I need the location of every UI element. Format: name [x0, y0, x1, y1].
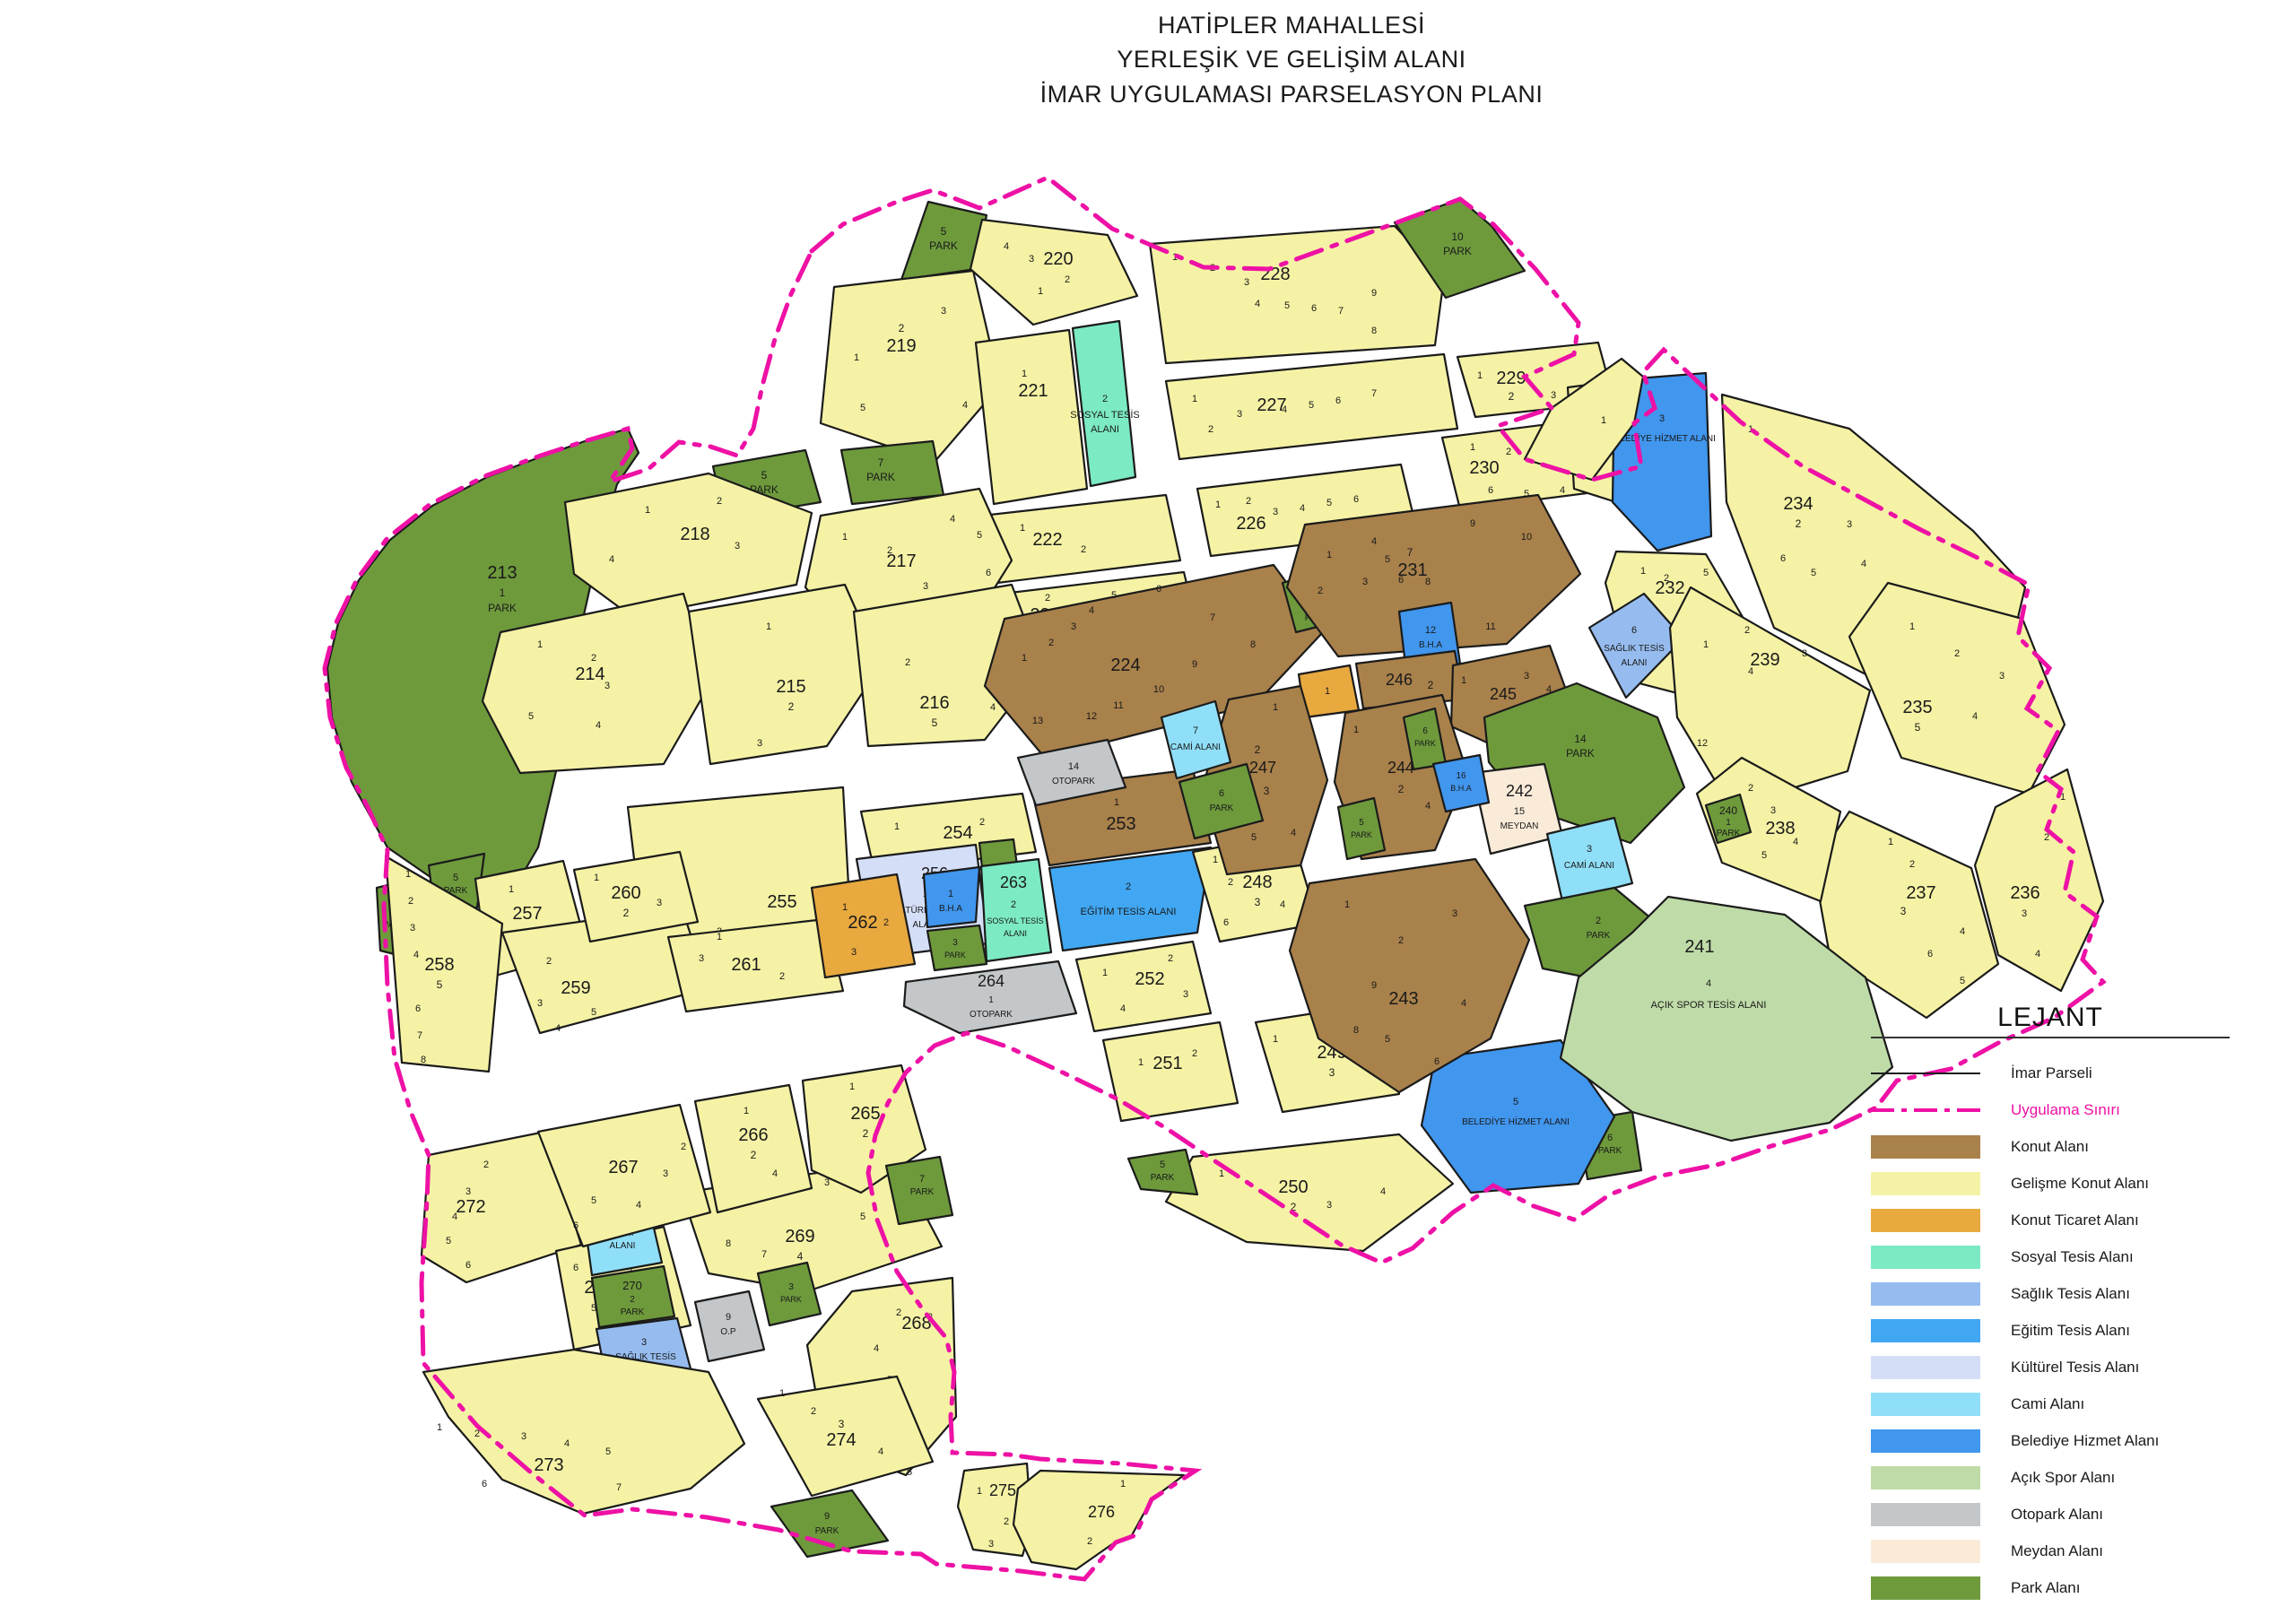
legend-color-swatch: [1871, 1319, 1980, 1342]
block-243-label: 8: [1353, 1025, 1359, 1036]
block-273-label: 273: [534, 1455, 563, 1475]
block-226-label: 5: [1326, 498, 1332, 508]
park-10-label: PARK: [1443, 245, 1472, 257]
saglik-232-label: ALANI: [1622, 658, 1648, 668]
block-220-label: 2: [1065, 274, 1070, 285]
block-218-label: 3: [735, 541, 740, 551]
park-6a-label: 6: [1219, 788, 1224, 799]
block-230-label: 1: [1470, 442, 1475, 453]
legend-line-label: İmar Parseli: [2011, 1064, 2092, 1082]
block-250-label: 1: [1219, 1168, 1224, 1179]
belediye-5-label: BELEDİYE HİZMET ALANI: [1462, 1116, 1570, 1127]
block-276-label: 2: [1087, 1536, 1092, 1547]
block-227-label: 3: [1237, 409, 1242, 420]
block-243-label: 5: [1385, 1034, 1390, 1045]
block-250-shape: [1166, 1134, 1453, 1251]
legend-color-swatch: [1871, 1282, 1980, 1306]
block-221-label: 221: [1018, 381, 1048, 401]
block-268-label: 4: [874, 1343, 879, 1354]
legend-line-label: Uygulama Sınırı: [2011, 1101, 2120, 1119]
park-7b-label: 7: [919, 1174, 925, 1185]
legend-area-item-11: Meydan Alanı: [1871, 1533, 2230, 1569]
park-14-label: PARK: [1566, 747, 1595, 760]
block-229-label: 2: [1509, 390, 1515, 403]
block-269-label: 5: [860, 1211, 865, 1222]
otopark-264-label: 1: [988, 995, 994, 1005]
map-title-line3: İMAR UYGULAMASI PARSELASYON PLANI: [951, 80, 1632, 109]
block-224-label: 4: [1089, 605, 1094, 616]
block-258-label: 3: [410, 923, 415, 934]
bha-242-label: 16: [1456, 771, 1466, 781]
egitim-253-label: 2: [1126, 881, 1131, 892]
legend-area-label: Konut Alanı: [2011, 1138, 2089, 1156]
block-224-label: 13: [1032, 716, 1043, 726]
block-273-label: 1: [437, 1422, 442, 1433]
block-245-label: 3: [1524, 671, 1529, 682]
konut-246-label: 2: [1428, 679, 1434, 691]
block-251: 25112: [1103, 1022, 1238, 1121]
block-259-label: 5: [591, 1007, 596, 1018]
block-228-label: 7: [1338, 306, 1344, 317]
block-224-label: 11: [1113, 700, 1123, 711]
block-237-label: 6: [1927, 949, 1933, 960]
block-247-label: 4: [1291, 828, 1296, 838]
legend-title: LEJANT: [1871, 1003, 2230, 1033]
saglik-232-label: SAĞLIK TESİS: [1604, 642, 1665, 654]
block-229-label: 1: [1477, 370, 1483, 381]
block-269-label: 269: [785, 1227, 814, 1246]
legend-color-swatch: [1871, 1429, 1980, 1453]
block-227-label: 2: [1208, 424, 1213, 435]
block-272-label: 3: [465, 1186, 471, 1197]
park-14-label: 14: [1574, 733, 1587, 745]
block-222-label: 1: [1020, 523, 1025, 534]
block-228: 228123456789: [1150, 226, 1444, 363]
block-267-label: 5: [591, 1195, 596, 1206]
block-227-label: 6: [1335, 395, 1341, 406]
otopark-224-label: 14: [1068, 761, 1079, 772]
block-234-label: 2: [1796, 517, 1802, 530]
block-234-label: 5: [1811, 568, 1816, 578]
legend-area-label: Belediye Hizmet Alanı: [2011, 1432, 2159, 1450]
block-260-label: 3: [657, 898, 662, 908]
block-214-label: 1: [537, 639, 543, 650]
block-231-label: 9: [1470, 518, 1475, 529]
block-274-label: 1: [779, 1388, 785, 1399]
block-250: 2502134: [1166, 1134, 1453, 1251]
park-3a-label: PARK: [780, 1295, 802, 1304]
block-222-label: 2: [1081, 544, 1086, 555]
park-5c-label: 5: [1160, 1159, 1165, 1170]
park-7a-label: 7: [878, 456, 884, 469]
block-251-label: 1: [1138, 1057, 1144, 1068]
block-249-label: 1: [1273, 1034, 1278, 1045]
block-220: 2201234: [970, 220, 1137, 325]
block-239-label: 2: [1744, 625, 1750, 636]
bha-263-label: B.H.A: [939, 904, 962, 914]
block-269-label: 7: [761, 1249, 767, 1260]
bha-231-label: 12: [1425, 625, 1436, 636]
block-226-label: 1: [1215, 499, 1221, 510]
block-252-label: 3: [1183, 989, 1188, 1000]
otopark-269: 9O.P: [695, 1291, 764, 1361]
park-5c-shape: [1128, 1150, 1197, 1194]
block-226-label: 2: [1246, 496, 1251, 507]
block-268-label: 2: [896, 1307, 901, 1318]
block-219: 21921345: [821, 271, 1000, 462]
sosyal-263-label: SOSYAL TESİS: [987, 916, 1043, 925]
block-266-label: 1: [744, 1106, 749, 1116]
park-7b-label: PARK: [910, 1187, 935, 1197]
block-275-label: 1: [977, 1486, 982, 1497]
block-258-label: 1: [405, 869, 411, 880]
block-243-label: 3: [1452, 908, 1457, 919]
block-258-label: 8: [421, 1055, 426, 1065]
block-254-label: 2: [979, 817, 985, 828]
block-266-label: 2: [751, 1149, 757, 1161]
sosyal-263-label: ALANI: [1004, 929, 1027, 938]
block-215-label: 1: [766, 621, 771, 632]
block-224-label: 8: [1250, 639, 1256, 650]
block-237-label: 1: [1888, 837, 1893, 847]
block-273-shape: [423, 1350, 744, 1514]
parcel-line-swatch: [1871, 1073, 1980, 1074]
block-220-label: 3: [1029, 254, 1034, 265]
park-213-label: 213: [487, 563, 517, 583]
legend-area-item-3: Sosyal Tesis Alanı: [1871, 1238, 2230, 1275]
block-227-label: 4: [1282, 404, 1287, 415]
block-227-label: 5: [1309, 400, 1314, 411]
park-270: 2702PARK: [592, 1266, 674, 1327]
block-237-label: 2: [1909, 859, 1915, 870]
park-213-label: PARK: [488, 602, 517, 614]
block-266-label: 4: [772, 1168, 778, 1179]
block-239-label: 239: [1750, 650, 1779, 670]
block-265-label: 2: [863, 1127, 869, 1140]
legend-color-swatch: [1871, 1503, 1980, 1526]
park-213-label: 1: [500, 586, 506, 599]
block-239-label: 1: [1703, 639, 1709, 650]
block-274-label: 3: [839, 1418, 845, 1430]
block-248-label: 4: [1280, 899, 1285, 910]
block-217-label: 3: [923, 581, 928, 592]
legend-area-item-4: Sağlık Tesis Alanı: [1871, 1275, 2230, 1312]
cami-241-label: 3: [1587, 844, 1592, 855]
sosyal-221-label: 2: [1102, 394, 1108, 404]
park-263: 3PARK: [927, 925, 987, 970]
block-245-label: 1: [1461, 675, 1466, 686]
block-252: 2521234: [1076, 942, 1211, 1031]
block-234-label: 6: [1780, 553, 1786, 564]
block-222: 22212: [982, 495, 1180, 583]
block-226-label: 6: [1353, 494, 1359, 505]
block-227-label: 1: [1192, 394, 1197, 404]
block-227-label: 7: [1371, 388, 1377, 399]
legend-area-item-12: Park Alanı: [1871, 1569, 2230, 1606]
block-262: 262123: [812, 874, 915, 977]
block-261-label: 3: [699, 953, 704, 964]
block-236-label: 236: [2010, 883, 2039, 903]
legend-area-label: Kültürel Tesis Alanı: [2011, 1359, 2139, 1376]
block-247-label: 1: [1273, 702, 1278, 713]
block-259-label: 2: [546, 956, 552, 967]
block-217-label: 1: [842, 532, 848, 543]
block-254-label: 254: [943, 823, 972, 843]
block-235-shape: [1849, 583, 2065, 794]
otopark-269-shape: [695, 1291, 764, 1361]
block-224-label: 10: [1153, 684, 1164, 695]
block-235-label: 235: [1902, 698, 1932, 717]
block-227: 2271234567: [1166, 354, 1457, 459]
otopark-264-label: OTOPARK: [970, 1010, 1013, 1020]
map-title: HATİPLER MAHALLESİ YERLEŞİK VE GELİŞİM A…: [951, 11, 1632, 114]
block-273-label: 7: [616, 1482, 622, 1493]
block-231-label: 6: [1398, 575, 1404, 586]
block-214-label: 2: [591, 653, 596, 664]
block-239-label: 3: [1802, 648, 1807, 659]
block-271-label: 6: [573, 1263, 578, 1273]
block-272-label: 272: [456, 1197, 485, 1217]
block-273: 2731234567: [423, 1350, 744, 1514]
park-6a-label: PARK: [1210, 803, 1234, 813]
block-252-label: 4: [1120, 1003, 1126, 1014]
block-216-label: 4: [990, 702, 996, 713]
block-238-label: 3: [1770, 805, 1776, 816]
block-238-label: 5: [1761, 850, 1767, 861]
block-274-label: 4: [878, 1446, 883, 1457]
block-231-label: 4: [1371, 536, 1377, 547]
block-231-label: 8: [1425, 577, 1431, 587]
block-231-label: 7: [1407, 546, 1413, 559]
bha-263-label: 1: [948, 889, 953, 899]
legend-area-label: Otopark Alanı: [2011, 1506, 2103, 1524]
block-219-label: 5: [860, 403, 865, 413]
park-9b-label: PARK: [815, 1526, 839, 1536]
block-220-shape: [970, 220, 1137, 325]
block-265-label: 1: [849, 1081, 855, 1092]
block-219-label: 3: [941, 306, 946, 317]
block-244-label: 1: [1353, 725, 1359, 735]
block-235-label: 4: [1972, 711, 1978, 722]
legend-color-swatch: [1871, 1172, 1980, 1195]
block-231-label: 5: [1385, 554, 1390, 565]
park-7b: 7PARK: [886, 1157, 952, 1224]
block-243-label: 6: [1434, 1056, 1439, 1067]
block-222-shape: [982, 495, 1180, 583]
block-267-label: 2: [681, 1142, 686, 1152]
block-249-label: 3: [1329, 1066, 1335, 1079]
sosyal-263: 2632SOSYAL TESİSALANI: [981, 859, 1051, 961]
block-248-label: 248: [1242, 873, 1272, 892]
park-5-top-label: PARK: [929, 239, 958, 252]
block-218-label: 4: [609, 554, 614, 565]
block-274-label: 274: [826, 1430, 856, 1450]
legend-color-swatch: [1871, 1540, 1980, 1563]
legend-area-item-9: Açık Spor Alanı: [1871, 1459, 2230, 1496]
otopark-269-label: O.P: [720, 1327, 736, 1337]
cami-241-label: CAMİ ALANI: [1564, 859, 1614, 871]
block-230-label: 6: [1488, 485, 1493, 496]
block-224-label: 12: [1086, 711, 1097, 722]
acikspor-241-label: AÇIK SPOR TESİS ALANI: [1651, 999, 1767, 1011]
block-244-label: 4: [1425, 801, 1431, 812]
block-259-label: 3: [537, 998, 543, 1009]
block-224-label: 3: [1071, 621, 1076, 632]
sosyal-221-label: SOSYAL TESİS: [1070, 409, 1139, 421]
otopark-269-label: 9: [726, 1312, 731, 1323]
park-5b-label: 5: [453, 873, 458, 883]
block-243-label: 243: [1388, 989, 1418, 1009]
block-217-label: 2: [887, 545, 892, 556]
block-252-label: 252: [1135, 969, 1164, 989]
legend-line-item-0: İmar Parseli: [1871, 1055, 2230, 1091]
block-224-label: 2: [1048, 638, 1054, 648]
block-220-label: 1: [1038, 286, 1043, 297]
block-245-label: 245: [1490, 685, 1517, 703]
block-250-label: 250: [1278, 1177, 1308, 1197]
block-252-label: 2: [1168, 953, 1173, 964]
park-9b-label: 9: [824, 1511, 830, 1522]
parcelation-plan-page: { "title": { "line1": "HATİPLER MAHALLES…: [0, 0, 2296, 1624]
block-232-label: 1: [1640, 566, 1646, 577]
block-214-label: 214: [575, 664, 604, 684]
park-5d-label: PARK: [1351, 830, 1372, 839]
block-228-label: 6: [1311, 303, 1317, 314]
legend-area-item-10: Otopark Alanı: [1871, 1496, 2230, 1533]
block-228-label: 4: [1255, 299, 1260, 309]
block-237-label: 5: [1960, 976, 1965, 986]
block-235-label: 5: [1915, 721, 1921, 734]
park-240-label: PARK: [1717, 829, 1741, 838]
legend-color-swatch: [1871, 1466, 1980, 1489]
block-234-label: 234: [1783, 494, 1813, 514]
konut-246-label: 246: [1386, 671, 1413, 689]
park-240-label: 1: [1726, 818, 1731, 828]
block-219-label: 2: [899, 322, 905, 334]
block-228-label: 5: [1284, 300, 1290, 311]
block-226-label: 4: [1300, 503, 1305, 514]
cami-247-label: 7: [1193, 725, 1198, 736]
map-title-line2: YERLEŞİK VE GELİŞİM ALANI: [951, 45, 1632, 74]
block-244-label: 244: [1387, 759, 1414, 777]
block-224-label: 9: [1192, 659, 1197, 670]
block-231-label: 2: [1318, 586, 1323, 596]
belediye-5-label: 5: [1513, 1097, 1518, 1107]
block-259-label: 259: [561, 978, 590, 998]
legend-rule: [1871, 1037, 2230, 1038]
block-235: 23551234: [1849, 583, 2065, 794]
block-269-label: 8: [726, 1238, 731, 1249]
legend-area-label: Gelişme Konut Alanı: [2011, 1175, 2149, 1193]
block-260-label: 260: [611, 883, 640, 903]
block-223-label: 2: [1045, 593, 1050, 604]
park-5a-label: 5: [761, 469, 768, 482]
block-243-label: 2: [1398, 935, 1404, 946]
legend-area-item-7: Cami Alanı: [1871, 1385, 2230, 1422]
block-235-label: 3: [1999, 671, 2005, 682]
block-247-label: 2: [1255, 743, 1261, 756]
park-6c-label: 6: [1607, 1133, 1613, 1143]
park-6b-label: 6: [1422, 726, 1428, 736]
block-230-label: 230: [1469, 458, 1499, 478]
block-262-label: 262: [848, 913, 877, 933]
legend-color-swatch: [1871, 1576, 1980, 1600]
block-260-label: 1: [594, 873, 599, 883]
block-228-label: 8: [1371, 326, 1377, 336]
bha-263: 1B.H.A: [924, 867, 979, 927]
block-265-label: 265: [850, 1104, 880, 1124]
block-274-label: 5: [907, 1467, 912, 1478]
park-5-top-label: 5: [941, 225, 947, 238]
block-232-label: 5: [1703, 568, 1709, 578]
meydan-242-label: MEYDAN: [1500, 821, 1539, 831]
block-239-label: 12: [1697, 738, 1708, 749]
block-273-label: 4: [564, 1438, 570, 1449]
park-5c: 5PARK: [1128, 1150, 1197, 1194]
legend-area-label: Cami Alanı: [2011, 1395, 2084, 1413]
cami-270-label: ALANI: [610, 1241, 636, 1251]
block-251-label: 2: [1192, 1048, 1197, 1059]
block-215: 215213: [689, 585, 881, 764]
block-275-label: 3: [988, 1539, 994, 1550]
legend-area-item-2: Konut Ticaret Alanı: [1871, 1202, 2230, 1238]
legend-area-label: Eğitim Tesis Alanı: [2011, 1322, 2130, 1340]
block-247-label: 3: [1264, 785, 1270, 797]
park-241-label: PARK: [1587, 931, 1611, 941]
legend-area-item-5: Eğitim Tesis Alanı: [1871, 1312, 2230, 1349]
block-258-label: 4: [413, 950, 419, 960]
sosyal-263-label: 2: [1011, 899, 1016, 910]
block-229-label: 3: [1551, 390, 1556, 401]
block-248-label: 3: [1255, 896, 1261, 908]
park-10-label: 10: [1451, 230, 1464, 243]
block-232-label: 2: [1664, 573, 1669, 584]
legend-area-item-1: Gelişme Konut Alanı: [1871, 1165, 2230, 1202]
block-232-label: 232: [1655, 578, 1684, 598]
block-244-label: 2: [1398, 783, 1405, 795]
legend-area-label: Konut Ticaret Alanı: [2011, 1211, 2139, 1229]
block-247-label: 247: [1249, 759, 1276, 777]
block-224-label: 5: [1111, 590, 1117, 601]
block-234-label: 4: [1861, 559, 1866, 569]
block-230-label: 2: [1506, 447, 1511, 457]
egitim-253-label: EĞİTİM TESİS ALANI: [1081, 906, 1177, 917]
block-238-label: 4: [1793, 837, 1798, 847]
block-258-label: 2: [408, 896, 413, 907]
park-7a: 7PARK: [841, 441, 944, 504]
block-247-label: 5: [1251, 832, 1257, 843]
block-215-label: 2: [788, 700, 795, 713]
block-216-label: 5: [932, 716, 938, 729]
meydan-242-label: 242: [1506, 782, 1533, 800]
cami-247-label: CAMİ ALANI: [1170, 741, 1221, 752]
legend-color-swatch: [1871, 1246, 1980, 1269]
sosyal-221-label: ALANI: [1091, 424, 1119, 435]
block-220-label: 220: [1043, 249, 1073, 269]
legend: LEJANT İmar ParseliUygulama SınırıKonut …: [1871, 1003, 2230, 1606]
block-251-label: 251: [1152, 1054, 1182, 1073]
block-273-label: 5: [605, 1446, 611, 1457]
block-235-label: 1: [1909, 621, 1915, 632]
block-234-label: 3: [1847, 519, 1852, 530]
block-235-label: 2: [1954, 648, 1960, 659]
legend-color-swatch: [1871, 1356, 1980, 1379]
block-262-label: 3: [851, 947, 857, 958]
boundary-line-swatch: [1871, 1108, 1980, 1112]
block-226-label: 3: [1273, 507, 1278, 517]
block-218-label: 2: [717, 496, 722, 507]
block-237-label: 237: [1906, 883, 1935, 903]
